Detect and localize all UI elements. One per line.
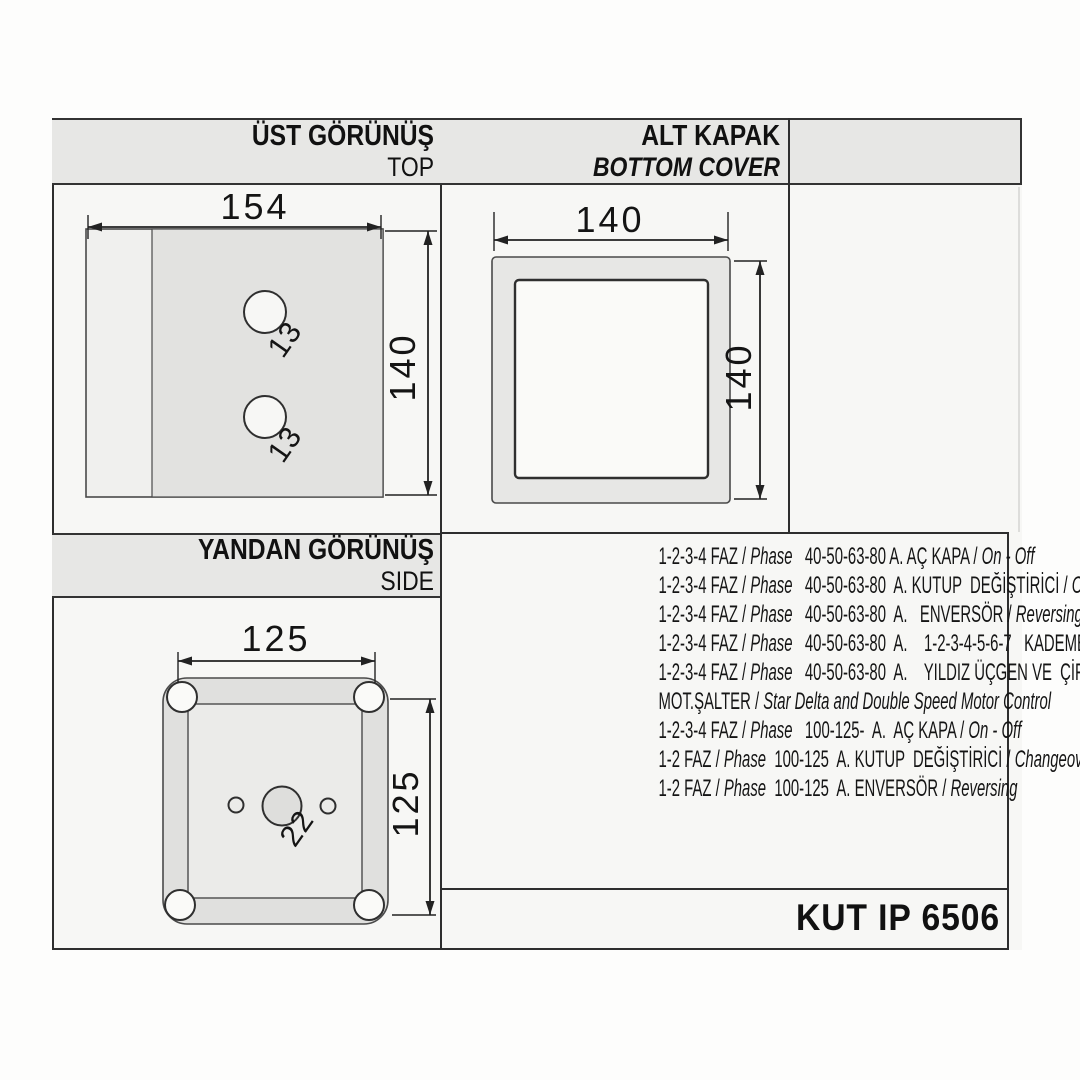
side-view-drawing: 22 125 125 — [52, 598, 440, 948]
top-view-drawing: 154 140 13 13 — [52, 185, 440, 532]
datasheet-page: ÜST GÖRÜNÜŞ TOP ALT KAPAK BOTTOM COVER Y… — [0, 0, 1080, 1080]
spec-panel-top-border — [440, 532, 1009, 534]
spec-line: 1-2-3-4 FAZ / Phase 40-50-63-80 A. ENVER… — [659, 600, 1002, 629]
side-view-width-dim: 125 — [241, 618, 310, 659]
side-view-height-dim: 125 — [385, 768, 426, 837]
bottom-cover-drawing: 140 140 — [440, 185, 788, 532]
corner-screw-4 — [354, 890, 384, 920]
top-view-width-dim: 154 — [220, 186, 289, 227]
top-view-height-dim: 140 — [382, 332, 423, 401]
spec-line: 1-2-3-4 FAZ / Phase 40-50-63-80 A. YILDI… — [659, 658, 1002, 687]
spec-line: 1-2-3-4 FAZ / Phase 40-50-63-80 A. AÇ KA… — [659, 542, 1002, 571]
page-edge-shadow — [1018, 187, 1020, 532]
bottom-cover-box-right-border — [788, 185, 790, 534]
spec-line: 1-2-3-4 FAZ / Phase 100-125- A. AÇ KAPA … — [659, 716, 1002, 745]
side-view-title-en: SIDE — [109, 566, 434, 597]
product-code: KUT IP 6506 — [498, 890, 1000, 946]
side-view-title-tr: YANDAN GÖRÜNÜŞ — [109, 535, 434, 566]
corner-screw-1 — [167, 682, 197, 712]
spec-list: 1-2-3-4 FAZ / Phase 40-50-63-80 A. AÇ KA… — [448, 542, 1002, 803]
spec-line: 1-2 FAZ / Phase 100-125 A. ENVERSÖR / Re… — [659, 774, 1002, 803]
small-hole-right — [321, 799, 336, 814]
section-header-bottom-cover: ALT KAPAK BOTTOM COVER — [440, 118, 1022, 185]
top-view-title-tr: ÜST GÖRÜNÜŞ — [109, 121, 434, 152]
bottom-cover-height-dim: 140 — [718, 342, 759, 411]
bottom-cover-width-dim: 140 — [575, 199, 644, 240]
spec-line: MOT.ŞALTER / Star Delta and Double Speed… — [659, 687, 1002, 716]
corner-screw-2 — [354, 682, 384, 712]
corner-screw-3 — [165, 890, 195, 920]
cover-opening — [515, 280, 708, 478]
bottom-cover-title-en: BOTTOM COVER — [491, 152, 780, 183]
top-view-title-en: TOP — [109, 152, 434, 183]
header-cell-divider — [788, 118, 790, 185]
frame-bottom-border — [52, 948, 1009, 950]
bottom-cover-title-tr: ALT KAPAK — [491, 121, 780, 152]
spec-line: 1-2-3-4 FAZ / Phase 40-50-63-80 A. 1-2-3… — [659, 629, 1002, 658]
spec-line: 1-2 FAZ / Phase 100-125 A. KUTUP DEĞİŞTİ… — [659, 745, 1002, 774]
section-header-top-view: ÜST GÖRÜNÜŞ TOP — [52, 118, 440, 185]
section-header-side-view: YANDAN GÖRÜNÜŞ SIDE — [52, 533, 440, 598]
spec-line: 1-2-3-4 FAZ / Phase 40-50-63-80 A. KUTUP… — [659, 571, 1002, 600]
small-hole-left — [229, 798, 244, 813]
